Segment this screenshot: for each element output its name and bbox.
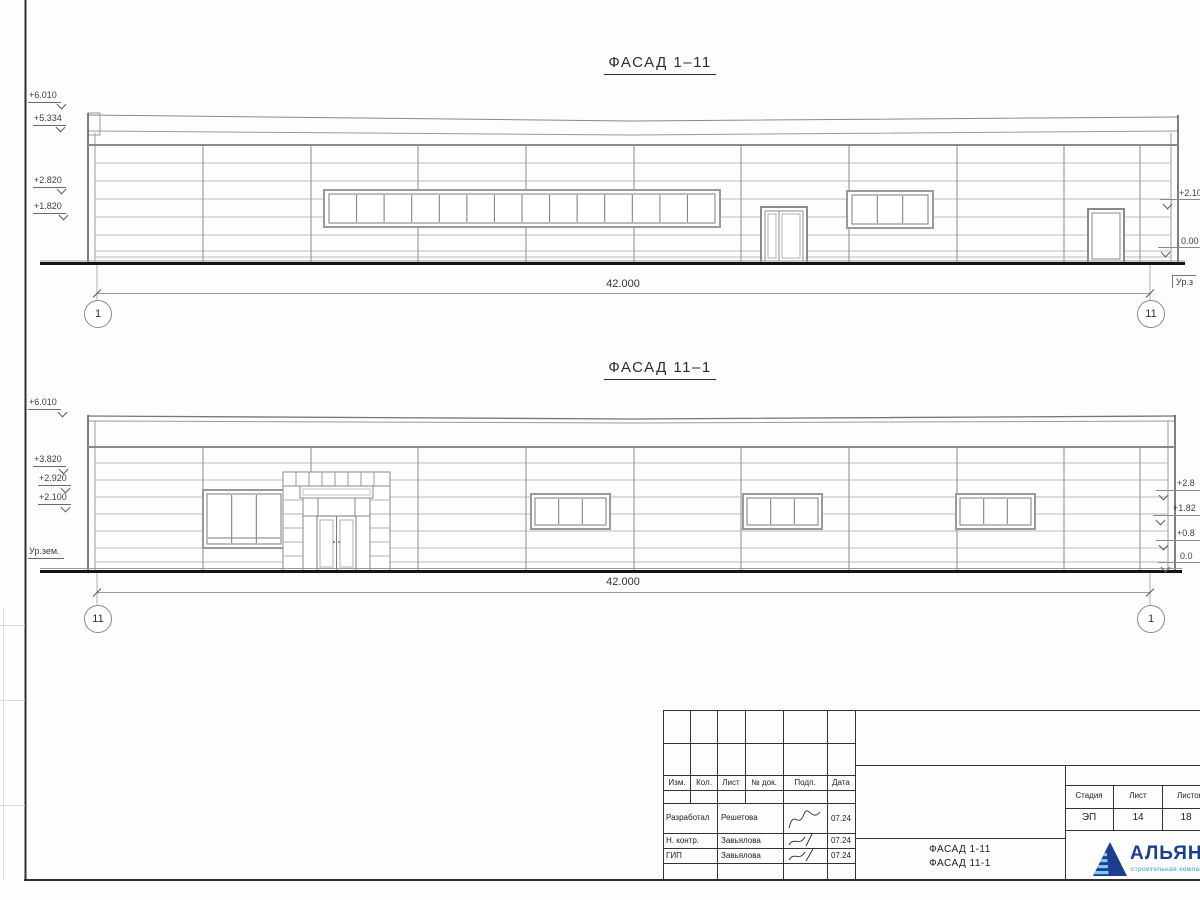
dimension-label: 42.000 bbox=[563, 278, 683, 290]
titleblock-col-izm: Изм. bbox=[668, 778, 685, 788]
sheet-value: 14 bbox=[1132, 813, 1143, 823]
sheets-label: Листов bbox=[1177, 791, 1200, 801]
ground-level-label: Ур.зем. bbox=[28, 546, 64, 559]
facade-linework bbox=[0, 0, 1200, 900]
drawing-sheet: ФАСАД 1–11 +6.010 +5.334 +2.820 +1.820 +… bbox=[0, 0, 1200, 900]
titleblock-date: 07.24 bbox=[831, 836, 851, 846]
titleblock-role: Разработал bbox=[666, 813, 710, 823]
elevation-label: +6.010 bbox=[28, 397, 61, 410]
signature-strokes bbox=[789, 811, 820, 861]
titleblock-name: Завьялова bbox=[721, 836, 761, 846]
elevation-label: +2.8 bbox=[1177, 478, 1195, 489]
titleblock-col-data: Дата bbox=[832, 778, 850, 788]
company-logo-name: АЛЬЯНС bbox=[1130, 843, 1200, 865]
axis-bubble: 11 bbox=[1137, 300, 1165, 328]
elevation-label: +3.820 bbox=[33, 454, 66, 467]
elevation-label: 0.00 bbox=[1181, 236, 1199, 247]
titleblock-col-list: Лист bbox=[722, 778, 739, 788]
facade2-title: ФАСАД 11–1 bbox=[540, 359, 780, 380]
facade1-title: ФАСАД 1–11 bbox=[540, 54, 780, 75]
elevation-label: 0.0 bbox=[1180, 551, 1193, 562]
titleblock-name: Завьялова bbox=[721, 851, 761, 861]
titleblock-col-doc: № док. bbox=[751, 778, 777, 788]
stage-value: ЭП bbox=[1082, 813, 1096, 823]
titleblock-name: Решетова bbox=[721, 813, 758, 823]
titleblock-date: 07.24 bbox=[831, 851, 851, 861]
ground-level-label: Ур.з bbox=[1172, 275, 1196, 288]
sheet-label: Лист bbox=[1129, 791, 1146, 801]
titleblock-role: ГИП bbox=[666, 851, 682, 861]
elevation-label: +6.010 bbox=[28, 90, 61, 103]
titleblock-col-podp: Подп. bbox=[794, 778, 815, 788]
sheets-value: 18 bbox=[1180, 813, 1191, 823]
drawing-title: ФАСАД 1-11 ФАСАД 11-1 bbox=[855, 843, 1065, 871]
stage-label: Стадия bbox=[1075, 791, 1102, 801]
elevation-label: +0.8 bbox=[1177, 528, 1195, 539]
company-logo-tagline: строительная компания bbox=[1131, 866, 1200, 873]
dimension-label: 42.000 bbox=[563, 576, 683, 588]
axis-bubble: 1 bbox=[1137, 605, 1165, 633]
alliance-pyramid-icon bbox=[1092, 841, 1128, 878]
elevation-label: +2.10 bbox=[1179, 188, 1200, 199]
axis-bubble: 1 bbox=[84, 300, 112, 328]
titleblock-col-kol: Кол. bbox=[696, 778, 712, 788]
titleblock-date: 07.24 bbox=[831, 814, 851, 824]
titleblock-role: Н. контр. bbox=[666, 836, 699, 846]
elevation-label: +1.82 bbox=[1173, 503, 1196, 514]
axis-bubble: 11 bbox=[84, 605, 112, 633]
